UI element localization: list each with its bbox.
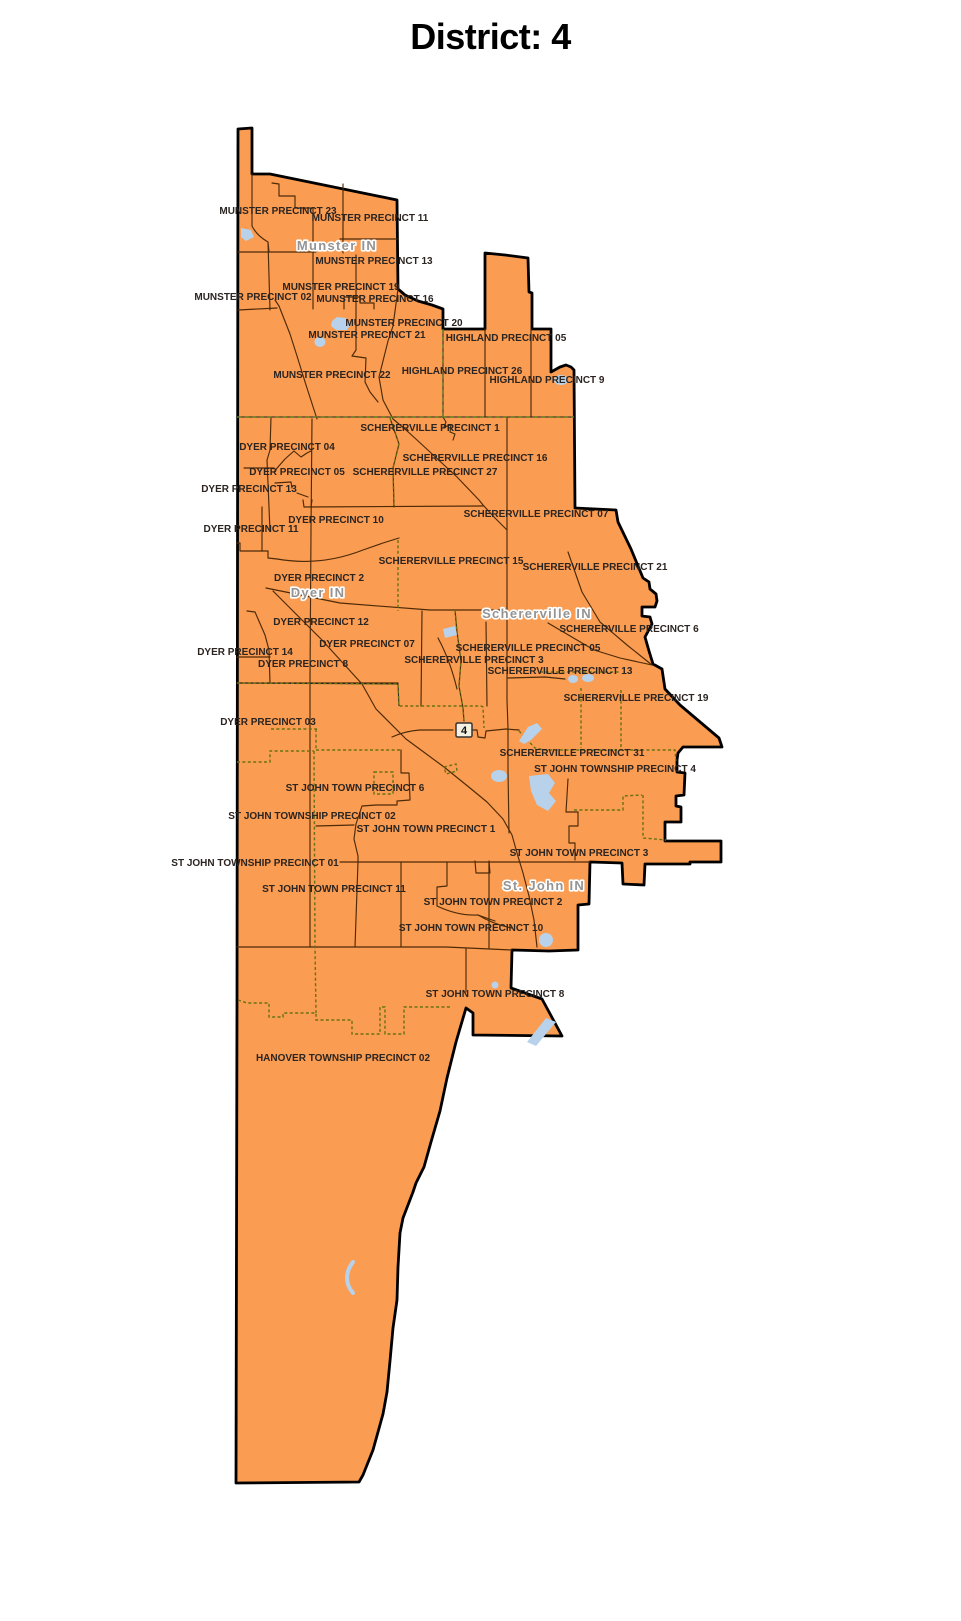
svg-text:MUNSTER PRECINCT 21: MUNSTER PRECINCT 21 — [308, 330, 426, 341]
svg-text:ST JOHN TOWNSHIP PRECINCT 02: ST JOHN TOWNSHIP PRECINCT 02 — [228, 811, 396, 822]
svg-text:SCHERERVILLE PRECINCT 1: SCHERERVILLE PRECINCT 1 — [360, 423, 500, 434]
svg-text:SCHERERVILLE PRECINCT 6: SCHERERVILLE PRECINCT 6 — [559, 624, 699, 635]
svg-text:St. John IN: St. John IN — [503, 878, 585, 893]
svg-text:DYER PRECINCT 2: DYER PRECINCT 2 — [274, 573, 364, 584]
svg-text:DYER PRECINCT 07: DYER PRECINCT 07 — [319, 639, 415, 650]
svg-text:ST JOHN TOWN PRECINCT 1: ST JOHN TOWN PRECINCT 1 — [357, 824, 496, 835]
svg-text:ST JOHN TOWN PRECINCT 8: ST JOHN TOWN PRECINCT 8 — [426, 989, 565, 1000]
svg-text:ST JOHN TOWN PRECINCT 10: ST JOHN TOWN PRECINCT 10 — [399, 923, 544, 934]
svg-text:Dyer IN: Dyer IN — [291, 585, 346, 600]
svg-text:DYER PRECINCT 13: DYER PRECINCT 13 — [201, 484, 297, 495]
svg-text:MUNSTER PRECINCT 20: MUNSTER PRECINCT 20 — [345, 318, 463, 329]
svg-text:ST JOHN TOWN PRECINCT 3: ST JOHN TOWN PRECINCT 3 — [510, 848, 649, 859]
svg-text:ST JOHN TOWN PRECINCT 11: ST JOHN TOWN PRECINCT 11 — [262, 884, 406, 895]
svg-text:Munster IN: Munster IN — [297, 238, 377, 253]
svg-text:HANOVER TOWNSHIP PRECINCT 02: HANOVER TOWNSHIP PRECINCT 02 — [256, 1053, 431, 1064]
svg-text:DYER PRECINCT 05: DYER PRECINCT 05 — [249, 467, 345, 478]
svg-text:DYER PRECINCT 12: DYER PRECINCT 12 — [273, 617, 369, 628]
svg-text:SCHERERVILLE PRECINCT 3: SCHERERVILLE PRECINCT 3 — [404, 655, 544, 666]
svg-text:DYER PRECINCT 11: DYER PRECINCT 11 — [203, 524, 298, 535]
svg-text:MUNSTER PRECINCT 11: MUNSTER PRECINCT 11 — [312, 213, 429, 224]
svg-text:SCHERERVILLE PRECINCT 15: SCHERERVILLE PRECINCT 15 — [379, 556, 524, 567]
svg-text:DYER PRECINCT 03: DYER PRECINCT 03 — [220, 717, 316, 728]
svg-text:ST JOHN TOWNSHIP PRECINCT 4: ST JOHN TOWNSHIP PRECINCT 4 — [534, 764, 696, 775]
svg-text:HIGHLAND PRECINCT 05: HIGHLAND PRECINCT 05 — [446, 333, 567, 344]
svg-text:SCHERERVILLE PRECINCT 27: SCHERERVILLE PRECINCT 27 — [353, 467, 498, 478]
svg-text:SCHERERVILLE PRECINCT 07: SCHERERVILLE PRECINCT 07 — [464, 509, 609, 520]
svg-text:ST JOHN TOWN PRECINCT 6: ST JOHN TOWN PRECINCT 6 — [286, 783, 425, 794]
svg-text:DYER PRECINCT 10: DYER PRECINCT 10 — [288, 515, 384, 526]
svg-text:MUNSTER PRECINCT 16: MUNSTER PRECINCT 16 — [316, 294, 434, 305]
svg-text:DYER PRECINCT 8: DYER PRECINCT 8 — [258, 659, 348, 670]
svg-text:Schererville IN: Schererville IN — [482, 606, 592, 621]
svg-text:SCHERERVILLE PRECINCT 21: SCHERERVILLE PRECINCT 21 — [523, 562, 668, 573]
svg-text:SCHERERVILLE PRECINCT 31: SCHERERVILLE PRECINCT 31 — [500, 748, 645, 759]
svg-text:ST JOHN TOWN PRECINCT 2: ST JOHN TOWN PRECINCT 2 — [424, 897, 563, 908]
svg-text:SCHERERVILLE PRECINCT 19: SCHERERVILLE PRECINCT 19 — [564, 693, 709, 704]
svg-text:ST JOHN TOWNSHIP PRECINCT 01: ST JOHN TOWNSHIP PRECINCT 01 — [171, 858, 339, 869]
svg-text:SCHERERVILLE PRECINCT 16: SCHERERVILLE PRECINCT 16 — [403, 453, 548, 464]
svg-text:MUNSTER PRECINCT 22: MUNSTER PRECINCT 22 — [273, 370, 391, 381]
svg-text:MUNSTER PRECINCT 13: MUNSTER PRECINCT 13 — [315, 256, 433, 267]
svg-text:SCHERERVILLE PRECINCT 13: SCHERERVILLE PRECINCT 13 — [488, 666, 633, 677]
svg-text:HIGHLAND PRECINCT 9: HIGHLAND PRECINCT 9 — [489, 375, 604, 386]
svg-text:4: 4 — [461, 725, 468, 737]
svg-text:MUNSTER PRECINCT 02: MUNSTER PRECINCT 02 — [194, 292, 312, 303]
svg-text:DYER PRECINCT 14: DYER PRECINCT 14 — [197, 647, 293, 658]
svg-text:SCHERERVILLE PRECINCT 05: SCHERERVILLE PRECINCT 05 — [456, 643, 601, 654]
svg-text:DYER PRECINCT 04: DYER PRECINCT 04 — [239, 442, 335, 453]
